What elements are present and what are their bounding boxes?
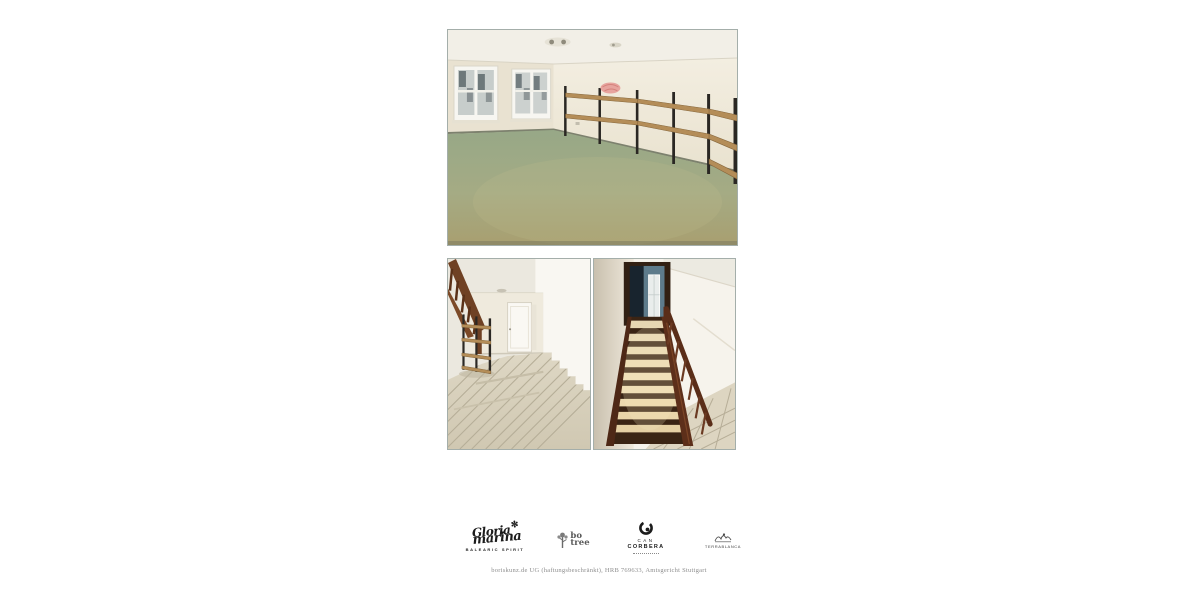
hallway-illustration bbox=[448, 259, 590, 449]
logo-gloria-marina: Gloria✼ marina BALEARIC SPIRIT bbox=[464, 522, 526, 564]
can-corbera-icon bbox=[638, 520, 654, 536]
basement-room-illustration bbox=[448, 30, 737, 245]
photo-basement-hallway bbox=[447, 258, 591, 450]
staircase-illustration bbox=[594, 259, 735, 449]
photo-basement-room bbox=[447, 29, 738, 246]
logo-terra-blanca: TERRABLANCA bbox=[699, 531, 747, 557]
bo-tree-icon bbox=[556, 531, 569, 549]
can-corbera-tagline bbox=[633, 553, 659, 554]
imprint-line: boriskunz.de UG (haftungsbeschränkt), HR… bbox=[449, 567, 749, 574]
can-corbera-word1: CAN bbox=[624, 538, 668, 543]
terra-blanca-label: TERRABLANCA bbox=[699, 544, 747, 549]
can-corbera-word2: CORBERA bbox=[624, 544, 668, 550]
logo-can-corbera: CAN CORBERA bbox=[624, 520, 668, 564]
gloria-marina-word2: marina bbox=[466, 531, 529, 546]
photo-staircase bbox=[593, 258, 736, 450]
bo-tree-word2: tree bbox=[570, 540, 589, 547]
terra-blanca-icon bbox=[714, 531, 732, 543]
logo-bo-tree: bo tree bbox=[549, 531, 597, 557]
expose-page: Gloria✼ marina BALEARIC SPIRIT bo tree C… bbox=[0, 0, 1200, 600]
